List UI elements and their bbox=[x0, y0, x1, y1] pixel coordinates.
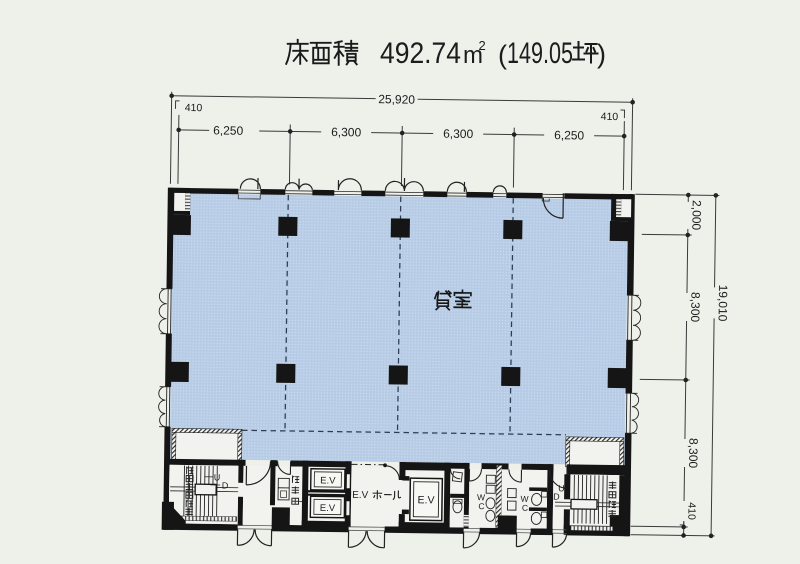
svg-text:C: C bbox=[478, 501, 484, 511]
svg-text:6,300: 6,300 bbox=[331, 125, 362, 139]
svg-text:492.74: 492.74 bbox=[380, 37, 461, 70]
svg-text:C: C bbox=[522, 503, 528, 513]
svg-text:149.05: 149.05 bbox=[507, 37, 573, 70]
svg-text:8,300: 8,300 bbox=[686, 438, 700, 469]
svg-text:410: 410 bbox=[685, 502, 697, 520]
svg-text:2,000: 2,000 bbox=[689, 200, 703, 231]
svg-text:(: ( bbox=[498, 40, 507, 70]
svg-text:): ) bbox=[597, 39, 606, 69]
svg-text:6,250: 6,250 bbox=[213, 123, 244, 137]
svg-text:U: U bbox=[214, 472, 221, 482]
svg-text:D: D bbox=[553, 492, 560, 502]
svg-text:E.V: E.V bbox=[352, 490, 369, 501]
svg-text:E.V: E.V bbox=[320, 503, 336, 514]
svg-text:410: 410 bbox=[185, 102, 203, 114]
svg-text:D: D bbox=[222, 481, 229, 491]
svg-text:E.V: E.V bbox=[320, 475, 336, 486]
svg-text:8,300: 8,300 bbox=[688, 292, 702, 323]
svg-text:2: 2 bbox=[479, 38, 486, 53]
svg-text:410: 410 bbox=[601, 111, 619, 123]
svg-text:6,300: 6,300 bbox=[443, 127, 474, 141]
svg-text:19,010: 19,010 bbox=[716, 285, 731, 322]
svg-text:25,920: 25,920 bbox=[378, 92, 415, 107]
svg-text:E.V: E.V bbox=[417, 494, 434, 506]
svg-text:6,250: 6,250 bbox=[554, 128, 585, 142]
